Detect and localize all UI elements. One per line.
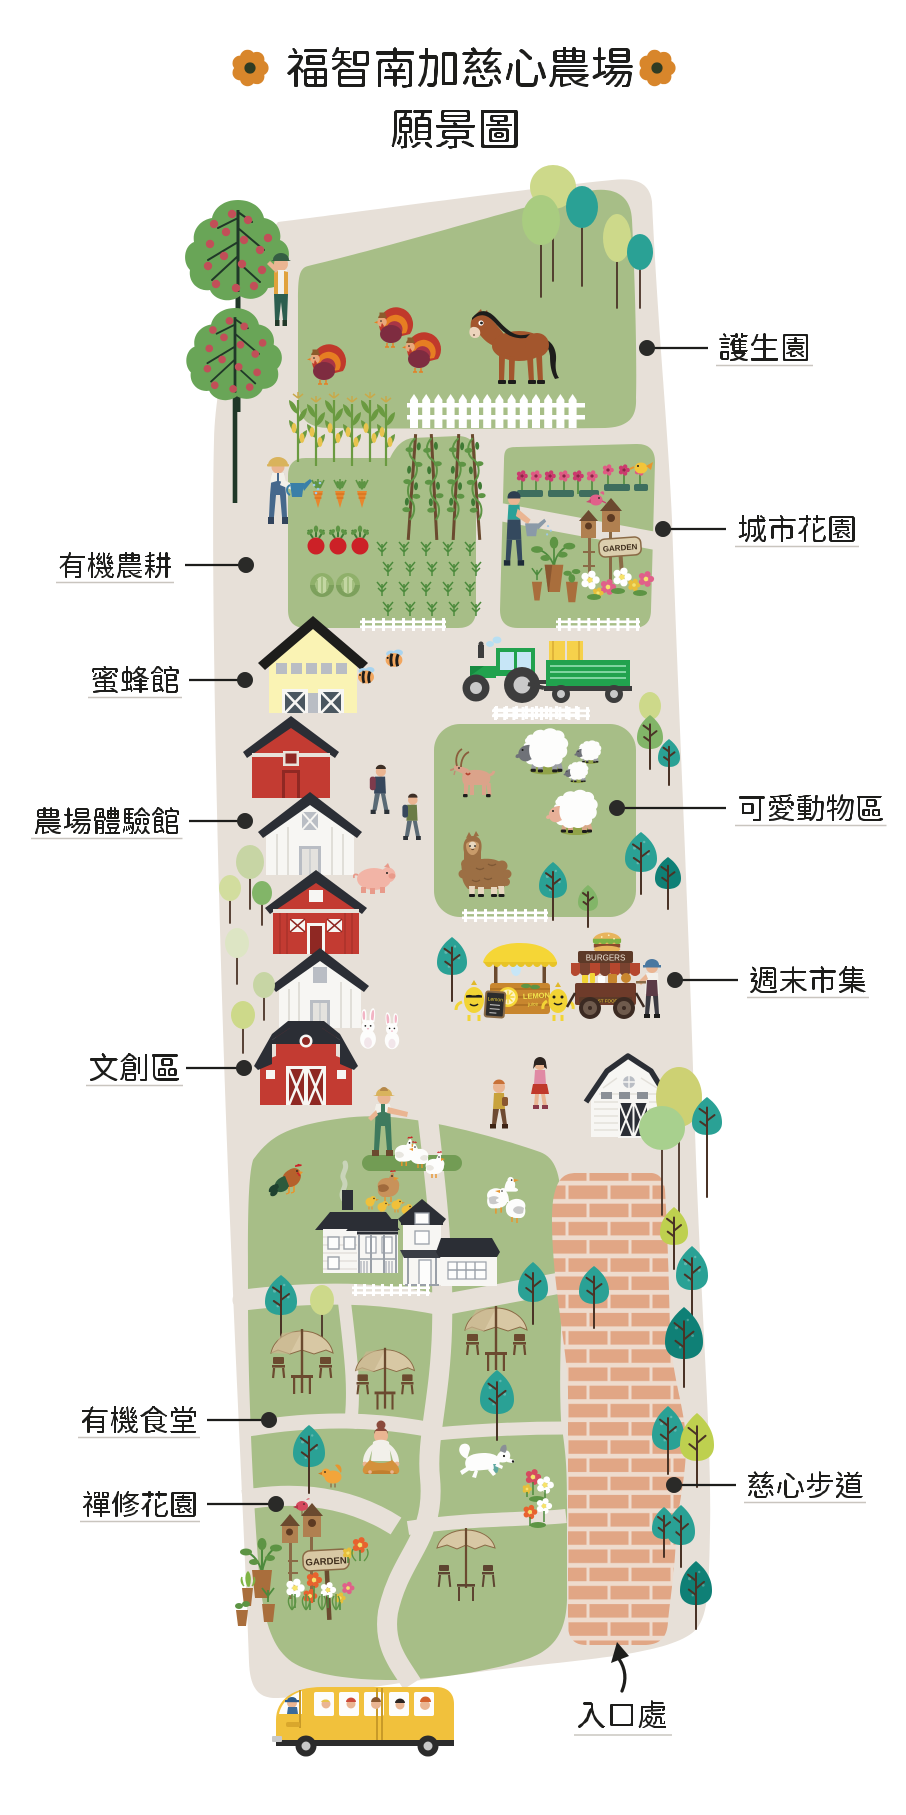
- svg-text:BURGERS: BURGERS: [586, 954, 626, 963]
- svg-text:GARDEN: GARDEN: [305, 1555, 347, 1568]
- svg-text:LEMON: LEMON: [523, 991, 551, 1001]
- svg-text:Lemon: Lemon: [487, 996, 503, 1003]
- svg-text:juice: juice: [527, 1001, 539, 1008]
